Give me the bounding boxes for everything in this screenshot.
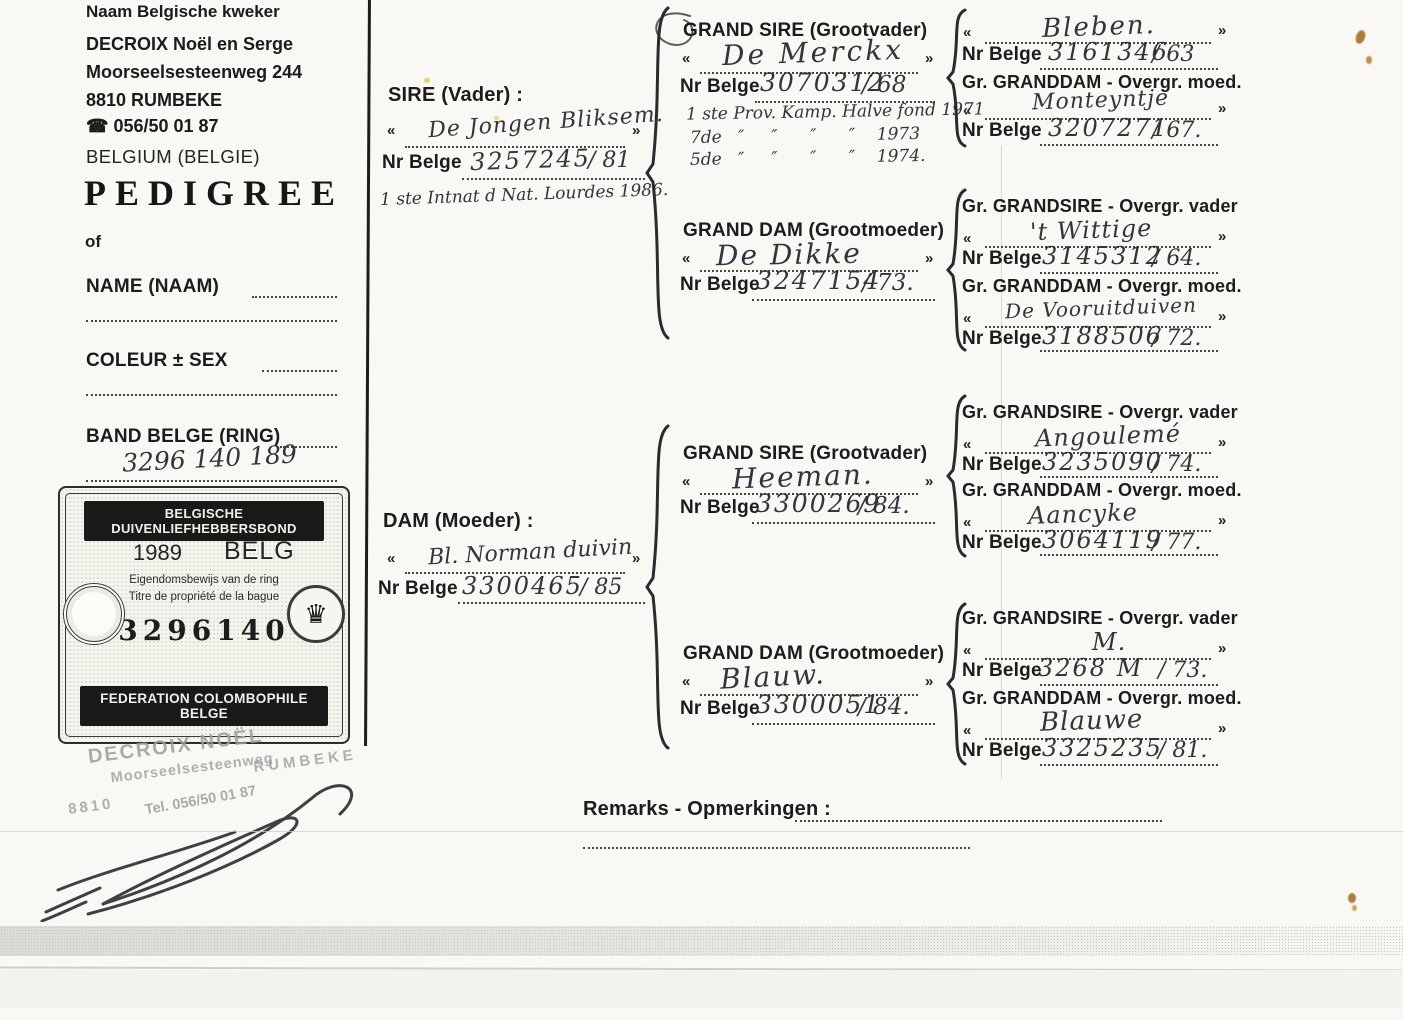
guillemet-open: «	[963, 102, 971, 119]
ggp2-dam-name: De Vooruitduiven	[1005, 293, 1198, 324]
certificate-year: 1989	[133, 540, 182, 566]
ggp1-dam-name: Monteyntje	[1032, 86, 1170, 116]
dotted-line	[1040, 270, 1218, 274]
dotted-line	[262, 368, 337, 372]
ggp2-sire-label: Gr. GRANDSIRE - Overgr. vader	[962, 196, 1238, 217]
dotted-line	[583, 845, 970, 849]
dotted-line	[86, 392, 337, 396]
breeder-field-label: Naam Belgische kweker	[86, 2, 280, 22]
guillemet-open: «	[963, 642, 971, 659]
ring-certificate: BELGISCHE DUIVENLIEFHEBBERSBOND 1989 BEL…	[58, 486, 350, 744]
ggp4-sire-label: Gr. GRANDSIRE - Overgr. vader	[962, 608, 1238, 629]
ggp4-sire-nr-label: Nr Belge	[962, 660, 1042, 682]
signature	[28, 772, 363, 922]
ggp1-sire-nr-label: Nr Belge	[962, 44, 1042, 66]
stain-spot	[1352, 905, 1357, 911]
ggp2-dam-nr-label: Nr Belge	[962, 328, 1042, 350]
breeder-city: 8810 RUMBEKE	[86, 90, 222, 111]
ggp1-dam-nr-label: Nr Belge	[962, 120, 1042, 142]
dotted-line	[752, 721, 935, 725]
sire-year: / 81	[588, 148, 630, 173]
gp3-year: / 84.	[858, 493, 910, 519]
breeder-phone: 056/50 01 87	[113, 116, 218, 136]
guillemet-open: «	[682, 250, 690, 267]
gp4-nr-label: Nr Belge	[680, 698, 760, 720]
guillemet-close: »	[1218, 308, 1226, 325]
column-divider	[364, 0, 370, 746]
dotted-line	[752, 520, 935, 524]
dotted-line	[1040, 348, 1218, 352]
sire-nr-label: Nr Belge	[382, 152, 462, 174]
gp1-note-1: 1 ste Prov. Kamp. Halve fond 1971	[686, 99, 985, 124]
faint-scan-line	[0, 831, 1403, 832]
title-of: of	[85, 232, 101, 252]
stain-spot	[424, 78, 430, 83]
guillemet-close: »	[1218, 100, 1226, 117]
sire-ring: 3257245	[470, 144, 592, 176]
phone-icon: ☎	[86, 116, 108, 136]
guillemet-close: »	[1218, 640, 1226, 657]
ggp1-dam-ring: 3207271	[1048, 114, 1169, 142]
ggp2-sire-nr-label: Nr Belge	[962, 248, 1042, 270]
dotted-line	[1040, 474, 1218, 478]
dam-nr-label: Nr Belge	[378, 578, 458, 600]
ggp4-dam-nr-label: Nr Belge	[962, 740, 1042, 762]
dotted-line	[458, 600, 645, 604]
guillemet-close: »	[1218, 512, 1226, 529]
ggp3-sire-nr-label: Nr Belge	[962, 454, 1042, 476]
dam-year: / 85	[580, 575, 622, 600]
breeder-phone-row: ☎ 056/50 01 87	[86, 116, 219, 137]
dotted-line	[252, 294, 337, 298]
guillemet-open: «	[387, 122, 395, 139]
guillemet-open: «	[682, 50, 690, 67]
name-field-label: NAME (NAAM)	[86, 276, 219, 298]
gp1-nr-label: Nr Belge	[680, 76, 760, 98]
guillemet-close: »	[925, 250, 933, 267]
guillemet-close: »	[1218, 22, 1226, 39]
guillemet-close: »	[1218, 228, 1226, 245]
breeder-street: Moorseelsesteenweg 244	[86, 62, 302, 83]
gp4-year: / 84.	[858, 694, 910, 720]
guillemet-close: »	[925, 50, 933, 67]
gp3-nr-label: Nr Belge	[680, 497, 760, 519]
dotted-line	[795, 818, 1162, 822]
stain-spot	[494, 116, 499, 120]
dotted-line	[1040, 682, 1218, 686]
ggp2-dam-ring: 3188506	[1042, 322, 1163, 350]
guillemet-open: «	[963, 310, 971, 327]
guillemet-open: «	[963, 722, 971, 739]
guillemet-open: «	[963, 514, 971, 531]
page-title: PEDIGREE	[84, 172, 344, 214]
sire-note: 1 ste Intnat d Nat. Lourdes 1986.	[380, 180, 669, 210]
dotted-line	[1040, 552, 1218, 556]
ggp4-dam-name: Blauwe	[1040, 704, 1144, 738]
ggp2-dam-label: Gr. GRANDDAM - Overgr. moed.	[962, 276, 1242, 297]
crown-ornament: ♛	[287, 585, 345, 643]
sire-label: SIRE (Vader) :	[388, 84, 523, 107]
ggp2-sire-year: / 64.	[1152, 246, 1201, 271]
ggp1-dam-year: / 67.	[1152, 118, 1201, 143]
guillemet-close: »	[925, 673, 933, 690]
gp2-year: / 73.	[862, 270, 914, 296]
ggp3-dam-ring: 3064119	[1042, 526, 1163, 554]
guillemet-close: »	[1218, 720, 1226, 737]
brace-icon	[644, 6, 672, 340]
brace-icon	[644, 424, 672, 750]
pedigree-document: Naam Belgische kweker DECROIX Noël en Se…	[0, 0, 1403, 1020]
gp2-nr-label: Nr Belge	[680, 274, 760, 296]
guillemet-open: «	[682, 673, 690, 690]
dotted-line	[1040, 142, 1218, 146]
sire-name: De Jongen Bliksem.	[427, 102, 664, 143]
dotted-line	[1040, 66, 1218, 70]
guillemet-open: «	[387, 550, 395, 567]
breeder-name: DECROIX Noël en Serge	[86, 34, 293, 55]
ggp4-dam-ring: 3325235	[1042, 734, 1163, 762]
certificate-country: BELG	[224, 537, 295, 566]
ggp2-sire-ring: 3145312	[1042, 242, 1163, 270]
gp1-note-2: 7de ″ ″ ″ ″ 1973	[690, 124, 920, 148]
dam-ring: 3300465	[462, 572, 583, 600]
ggp3-sire-ring: 3235090	[1042, 448, 1163, 476]
colour-field-label: COLEUR ± SEX	[86, 350, 228, 372]
guillemet-open: «	[963, 24, 971, 41]
ggp4-sire-year: / 73.	[1158, 658, 1207, 683]
scan-bottom-strip	[0, 970, 1403, 1008]
breeder-country: BELGIUM (BELGIE)	[86, 146, 260, 168]
ggp4-sire-name: M.	[1092, 628, 1126, 656]
guillemet-close: »	[632, 122, 640, 139]
gp1-name: De Merckx	[721, 33, 904, 72]
guillemet-open: «	[682, 473, 690, 490]
ggp3-dam-label: Gr. GRANDDAM - Overgr. moed.	[962, 480, 1242, 501]
guillemet-close: »	[1218, 434, 1226, 451]
dam-label: DAM (Moeder) :	[383, 510, 534, 533]
dotted-line	[462, 176, 645, 180]
ggp4-dam-year: / 81.	[1158, 738, 1207, 763]
dotted-line	[86, 478, 337, 482]
guillemet-close: »	[925, 473, 933, 490]
guillemet-close: »	[632, 550, 640, 567]
gp1-year: / 68	[862, 72, 906, 98]
stain-spot	[1366, 56, 1372, 64]
ggp4-sire-ring: 3268 M	[1038, 654, 1143, 682]
ggp1-sire-year: / 63	[1152, 42, 1194, 67]
dotted-line	[752, 297, 935, 301]
scan-noise-band	[0, 926, 1403, 956]
dotted-line	[1040, 762, 1218, 766]
guillemet-open: «	[963, 436, 971, 453]
dam-name: Bl. Norman duivin	[427, 535, 632, 571]
crown-icon: ♛	[304, 601, 327, 627]
guillemet-open: «	[963, 230, 971, 247]
certificate-federation-nl: BELGISCHE DUIVENLIEFHEBBERSBOND	[84, 501, 324, 541]
gp1-note-3: 5de ″ ″ ″ ″ 1974.	[690, 146, 926, 170]
stain-spot	[1348, 893, 1356, 903]
dotted-line	[86, 318, 337, 322]
ggp3-dam-nr-label: Nr Belge	[962, 532, 1042, 554]
ggp3-sire-label: Gr. GRANDSIRE - Overgr. vader	[962, 402, 1238, 423]
ggp1-sire-ring: 3161346	[1048, 38, 1169, 66]
remarks-label: Remarks - Opmerkingen :	[583, 798, 831, 821]
rosette-icon	[63, 583, 125, 645]
stain-spot	[1354, 29, 1367, 45]
